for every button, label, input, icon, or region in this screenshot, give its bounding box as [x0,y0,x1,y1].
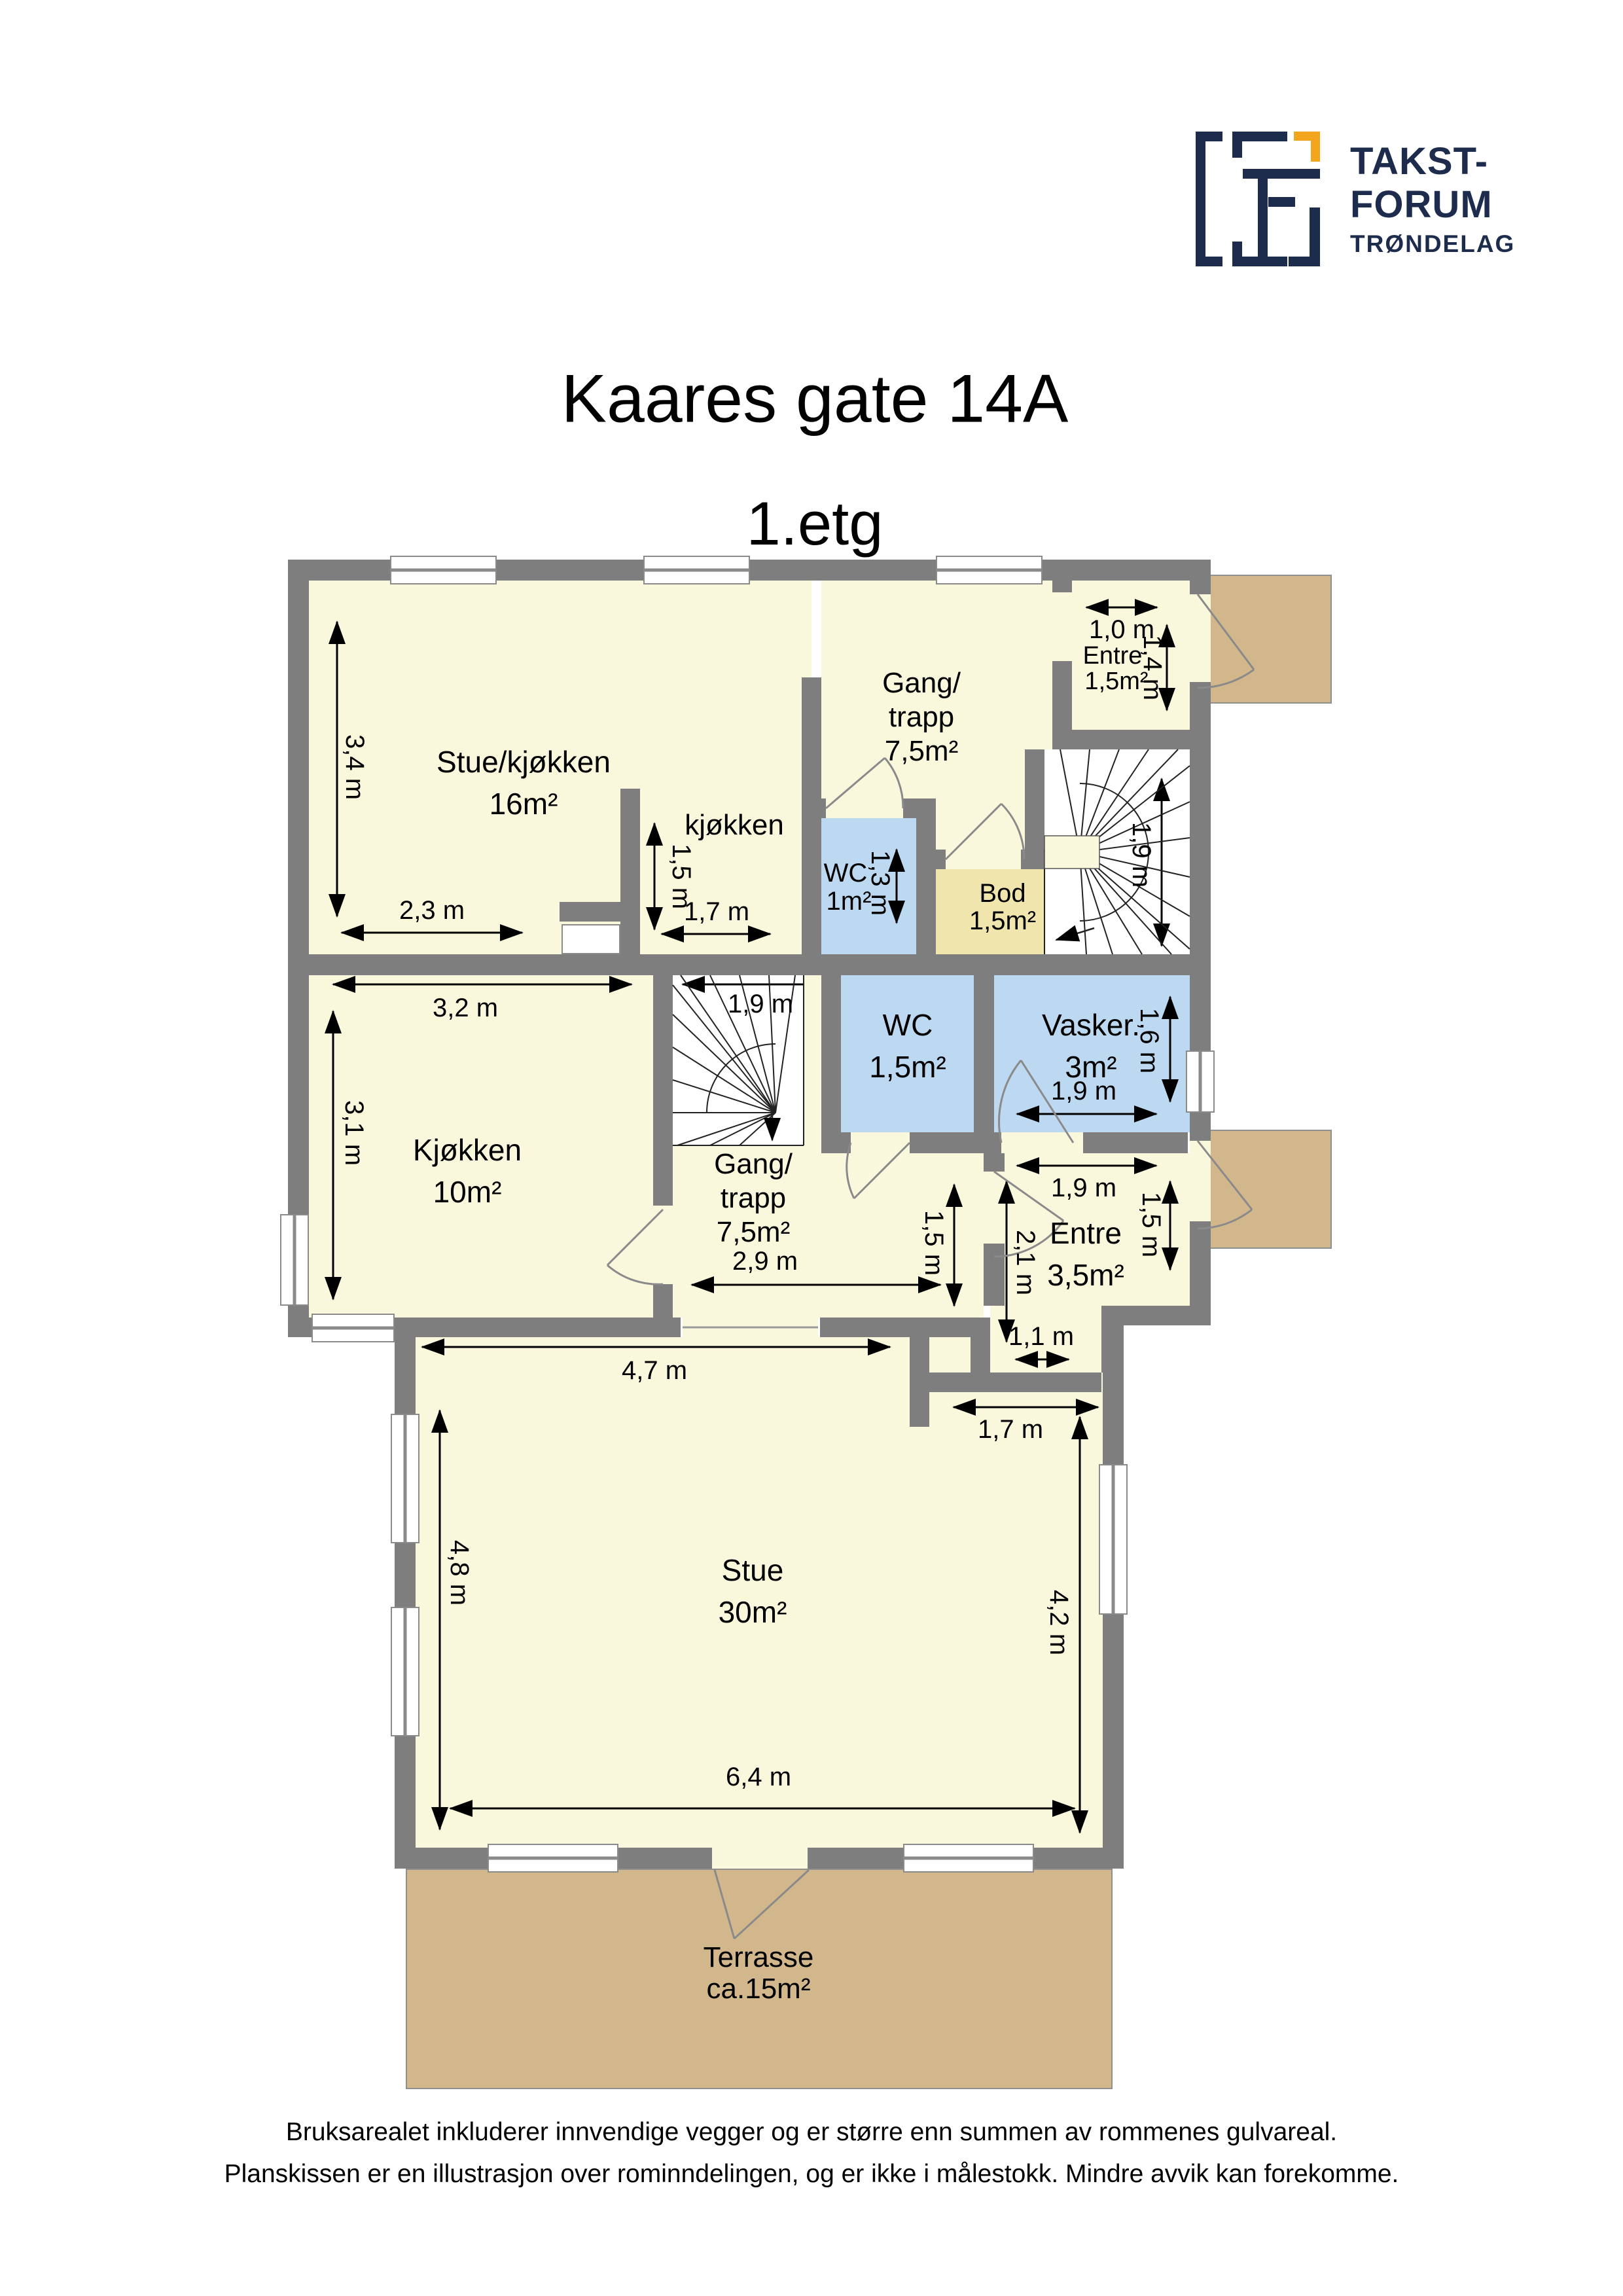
logo-icon-graphic [1196,132,1320,266]
measure-label: 1,5 m [921,1210,947,1276]
door-opening-wc2 [851,1132,910,1153]
floorplan-page: TAKST- FORUM TRØNDELAG Kaares gate 14A 1… [0,0,1623,2296]
room-label: kjøkken [685,811,784,840]
window [391,1607,419,1736]
room-area: 3,5m² [1047,1260,1124,1290]
window [280,1214,309,1306]
page-subtitle: 1.etg [746,488,883,559]
room-area: ca.15m² [707,1975,811,2003]
wall-wc-bod [916,798,936,954]
wall-mid-horizontal [288,954,1211,975]
window [936,556,1043,584]
door-opening-vasker [1001,1132,1083,1153]
window [312,1314,395,1342]
room-label: trapp [721,1184,786,1213]
window [390,556,497,584]
window [903,1844,1034,1873]
door-opening-wc-small [826,798,903,818]
measure-label: 1,9 m [1051,1078,1116,1104]
room-label: WC [824,860,868,886]
measure-label: 2,9 m [732,1248,798,1274]
room-label: Terrasse [704,1943,814,1972]
room-area: 1,5m² [869,1052,946,1082]
wall-entre-lower-bottom [1101,1306,1211,1325]
door-opening-entre-lower [984,1172,1005,1244]
measure-label: 1,7 m [684,899,749,925]
room-label: Vasker. [1042,1010,1140,1040]
wall-kitchen-nook [620,789,640,954]
logo-line2: FORUM [1350,186,1515,224]
room-label: Gang/ [714,1150,793,1179]
wall-wc2-left [821,975,841,1132]
measure-label: 2,1 m [1012,1230,1039,1295]
page-title: Kaares gate 14A [562,361,1069,439]
measure-label: 1,9 m [1051,1175,1116,1201]
room-label: trapp [889,703,954,732]
measure-label: 4,7 m [622,1357,687,1384]
room-label: Stue/kjøkken [437,747,611,777]
stairs-upper-area [1044,749,1190,954]
porch-upper [1209,575,1332,704]
measure-label: 1,7 m [978,1416,1043,1443]
measure-label: 2,3 m [399,897,465,924]
room-label: Entre [1083,643,1143,668]
wall-corridor-right [1101,1325,1124,1372]
wall-stue-gang [802,677,821,954]
window [643,556,750,584]
room-area: 7,5m² [717,1218,790,1247]
wall-gang-bottom [820,1318,990,1337]
measure-label: 4,2 m [1046,1590,1072,1655]
porch-lower [1209,1130,1332,1249]
room-label: Kjøkken [413,1135,522,1165]
wall-under-entre-upper [1052,730,1211,749]
logo-icon [1196,132,1320,266]
door-opening-entre-lower-porch [1190,1141,1211,1221]
window [488,1844,618,1873]
room-area: 30m² [719,1597,787,1627]
measure-label: 4,8 m [446,1540,473,1605]
room-area: 7,5m² [885,737,958,766]
door-opening-bod [946,850,1021,869]
footer-line1: Bruksarealet inkluderer innvendige vegge… [286,2118,1337,2147]
kitchen-counter [562,924,620,954]
door-opening-entre-upper-porch [1190,594,1211,682]
footer-line2: Planskissen er en illustrasjon over romi… [224,2160,1399,2189]
wall-shaft-right [971,1318,990,1372]
wall-kitchen-peninsula [560,902,620,922]
room-label: Gang/ [882,669,961,698]
room-area: 10m² [433,1177,502,1207]
measure-label: 1,5 m [1138,1192,1164,1257]
wall-stue-right [1103,1372,1124,1869]
measure-label: 3,2 m [433,995,498,1021]
window [391,1414,419,1543]
passage-gang-stue [683,1318,818,1337]
measure-label: 3,4 m [342,734,368,800]
window [1099,1464,1128,1615]
door-opening-terrace [712,1848,808,1869]
room-label: Bod [979,880,1026,906]
measure-label: 1,4 m [1139,635,1166,700]
room-label: WC [883,1010,933,1040]
measure-label: 1,6 m [1136,1008,1162,1073]
room-label: Entre [1050,1218,1122,1248]
room-label: Stue [722,1555,784,1585]
door-opening-kjokken [653,1206,673,1284]
logo-line1: TAKST- [1350,143,1515,181]
measure-label: 1,3 m [867,850,893,916]
room-area: 1m² [827,888,872,914]
measure-label: 3,1 m [341,1100,367,1166]
room-area: 16m² [490,789,558,819]
wall-corridor-bottom [910,1372,1101,1392]
measure-label: 6,4 m [726,1764,791,1790]
wall-wc2-vasker [974,975,994,1132]
room-area: 1,5m² [969,908,1036,934]
logo-wordmark: TAKST- FORUM TRØNDELAG [1350,143,1515,256]
window [1186,1050,1215,1113]
logo-line3: TRØNDELAG [1350,232,1515,256]
measure-label: 1,9 m [728,991,793,1017]
measure-label: 1,1 m [1008,1323,1074,1350]
measure-label: 1,9 m [1128,822,1154,888]
wall-gang-stairs [1025,749,1044,850]
door-opening-gang-entre-upper [1052,592,1072,661]
